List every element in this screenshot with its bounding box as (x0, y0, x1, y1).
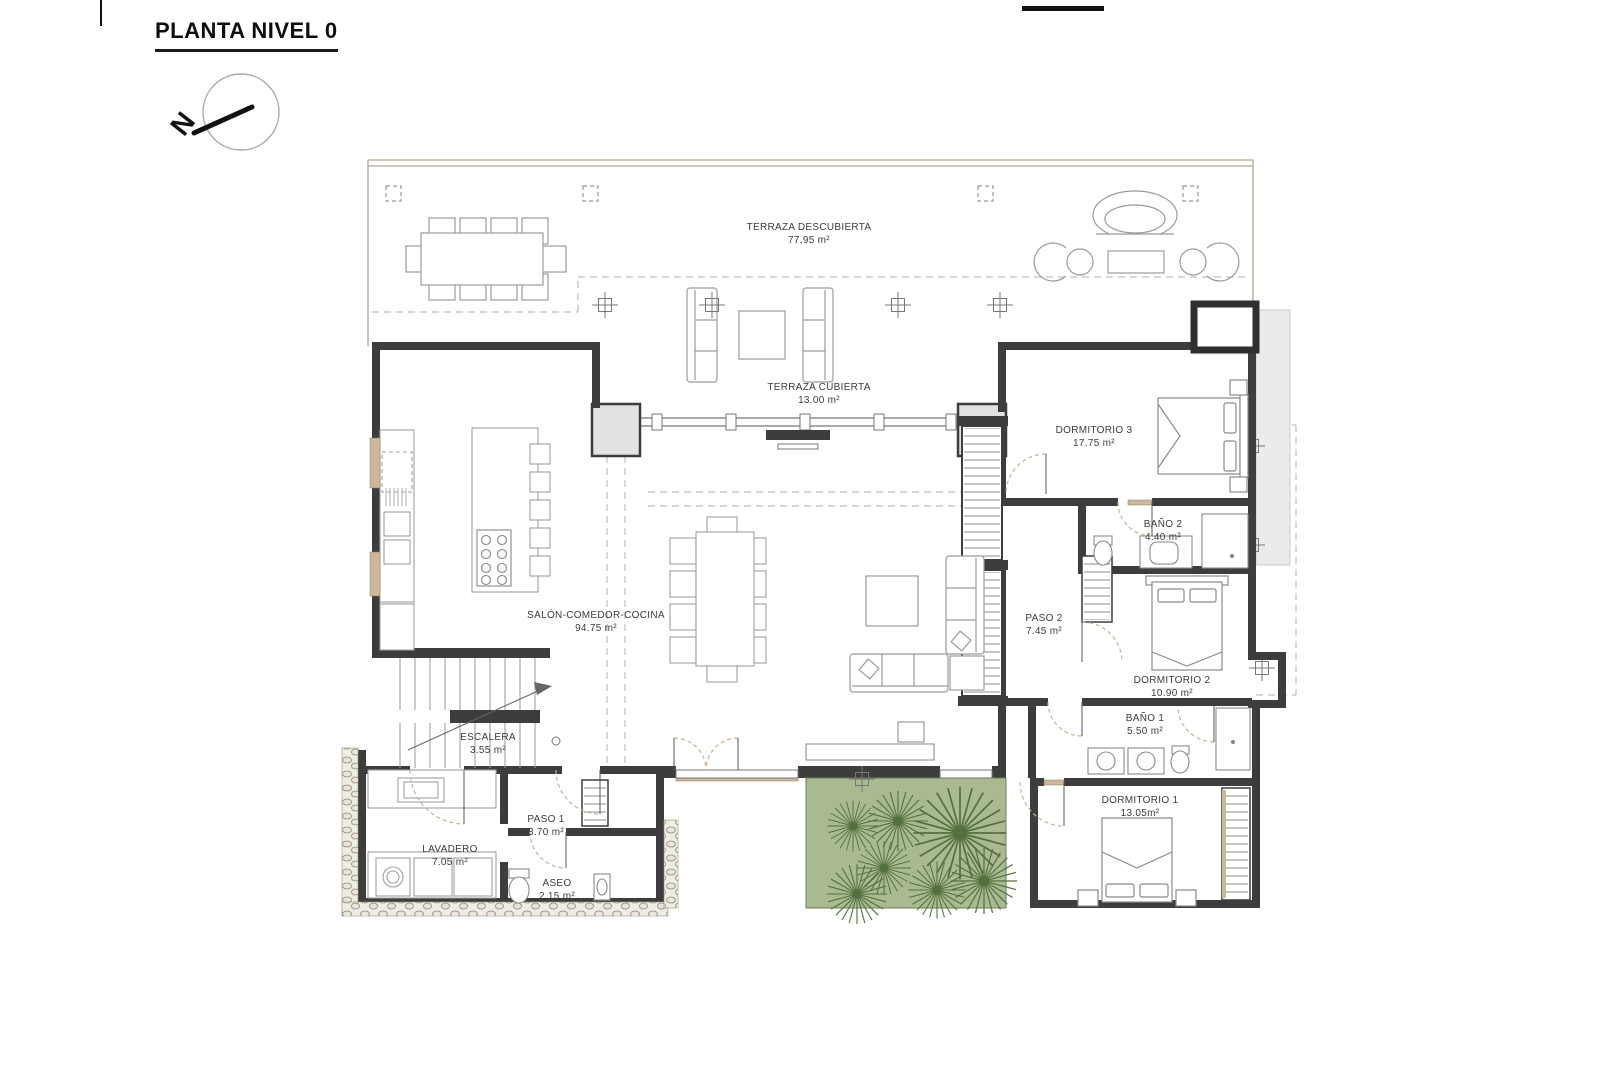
room-label-lavadero: LAVADERO 7.05 m² (422, 843, 477, 869)
room-label-aseo: ASEO 2.15 m² (539, 877, 575, 903)
room-label-escalera: ESCALERA 3.55 m² (460, 731, 516, 757)
terrace-columns (386, 186, 1198, 201)
room-name: PASO 2 (1025, 612, 1062, 625)
room-area: 3.70 m² (527, 826, 564, 839)
bed-dorm1 (1078, 818, 1196, 906)
room-label-dormitorio-1: DORMITORIO 1 13.05m² (1102, 794, 1179, 820)
floor-plan-drawing (0, 0, 1600, 1067)
sofa-set (806, 556, 984, 760)
room-area: 3.55 m² (460, 744, 516, 757)
kitchen (380, 428, 550, 650)
dining-set (670, 517, 766, 682)
room-area: 2.15 m² (539, 890, 575, 903)
bed-dorm2 (1146, 576, 1228, 670)
floor-plan-page: PLANTA NIVEL 0 N TERRAZA DESCUBIERTA 77,… (0, 0, 1600, 1067)
shower-bano2 (1202, 514, 1248, 568)
room-label-terraza-descubierta: TERRAZA DESCUBIERTA 77,95 m² (747, 221, 872, 247)
room-name: BAÑO 1 (1126, 712, 1164, 725)
room-label-bano-2: BAÑO 2 4.40 m² (1144, 518, 1182, 544)
room-name: BAÑO 2 (1144, 518, 1182, 531)
north-compass (194, 74, 279, 150)
laundry-fixtures (368, 770, 496, 898)
stair-direction-arrow-icon (534, 682, 552, 695)
room-name: DORMITORIO 2 (1134, 674, 1211, 687)
room-label-terraza-cubierta: TERRAZA CUBIERTA 13.00 m² (767, 381, 870, 407)
room-label-salon-comedor-cocina: SALÓN-COMEDOR-COCINA 94.75 m² (527, 609, 665, 635)
room-area: 77,95 m² (747, 234, 872, 247)
room-label-dormitorio-3: DORMITORIO 3 17.75 m² (1056, 424, 1133, 450)
room-area: 5.50 m² (1126, 725, 1164, 738)
room-area: 4.40 m² (1144, 531, 1182, 544)
sideboard (806, 744, 934, 760)
room-label-paso-2: PASO 2 7.45 m² (1025, 612, 1062, 638)
room-name: ESCALERA (460, 731, 516, 744)
outdoor-dining-set (406, 218, 566, 300)
room-name: DORMITORIO 3 (1056, 424, 1133, 437)
room-area: 7.05 m² (422, 856, 477, 869)
room-name: TERRAZA DESCUBIERTA (747, 221, 872, 234)
glazing (592, 404, 1006, 456)
room-name: PASO 1 (527, 813, 564, 826)
room-name: ASEO (539, 877, 575, 890)
side-terrace-band (1256, 310, 1290, 565)
room-name: SALÓN-COMEDOR-COCINA (527, 609, 665, 622)
room-area: 13.05m² (1102, 807, 1179, 820)
room-name: DORMITORIO 1 (1102, 794, 1179, 807)
room-name: TERRAZA CUBIERTA (767, 381, 870, 394)
room-label-bano-1: BAÑO 1 5.50 m² (1126, 712, 1164, 738)
covered-terrace-sofas (687, 288, 833, 382)
page-title: PLANTA NIVEL 0 (155, 18, 338, 52)
room-area: 94.75 m² (527, 622, 665, 635)
bar-stools (530, 444, 550, 576)
shower-bano1 (1216, 708, 1250, 770)
room-label-paso-1: PASO 1 3.70 m² (527, 813, 564, 839)
room-area: 7.45 m² (1025, 625, 1062, 638)
room-label-dormitorio-2: DORMITORIO 2 10.90 m² (1134, 674, 1211, 700)
room-area: 17.75 m² (1056, 437, 1133, 450)
room-name: LAVADERO (422, 843, 477, 856)
bed-dorm3 (1158, 380, 1248, 492)
room-area: 10.90 m² (1134, 687, 1211, 700)
room-area: 13.00 m² (767, 394, 870, 407)
coffee-table (866, 576, 918, 626)
outdoor-lounge-set (1034, 191, 1239, 281)
garden (806, 766, 1017, 924)
